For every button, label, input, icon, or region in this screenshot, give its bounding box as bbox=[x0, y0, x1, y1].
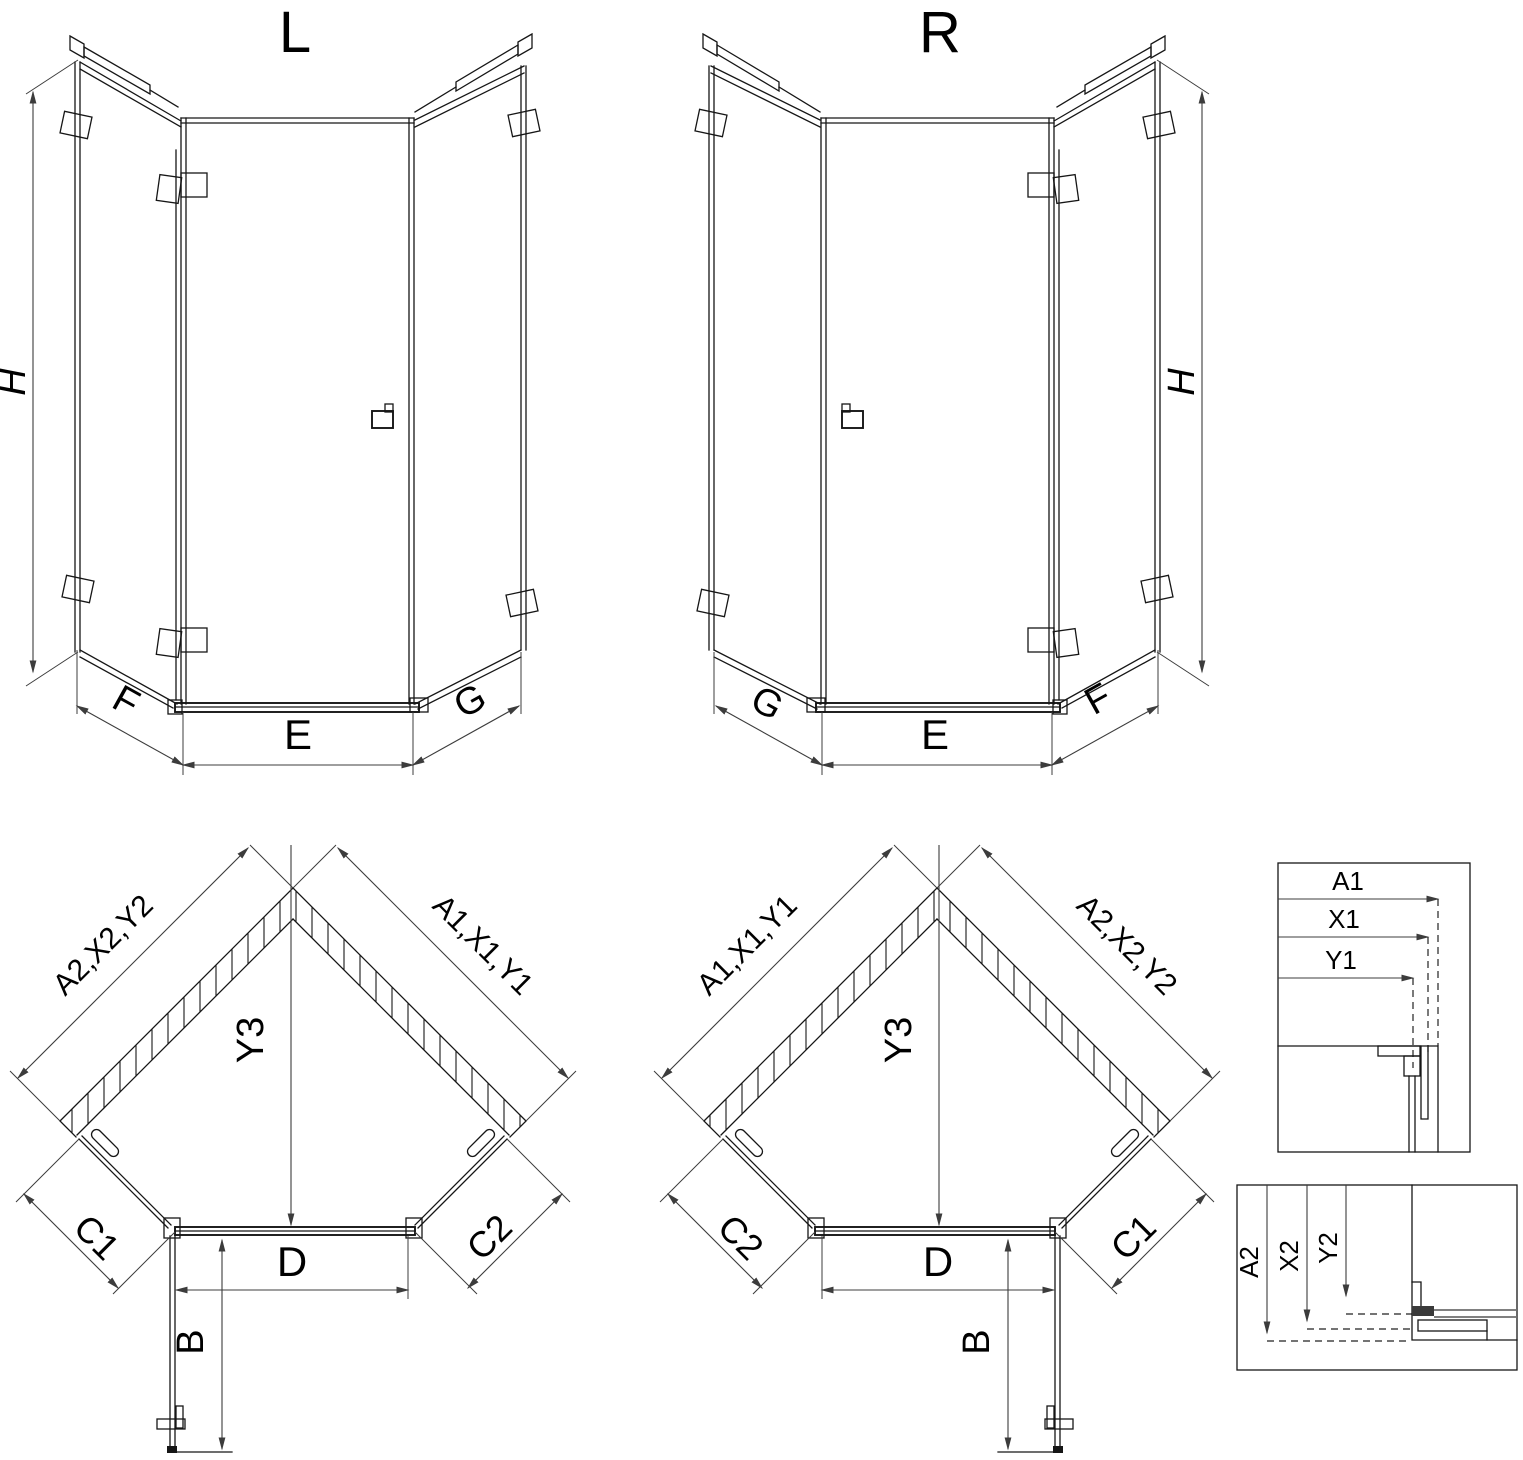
detail-top-y1-label: Y1 bbox=[1325, 945, 1357, 975]
iso-right-height-label: H bbox=[1161, 368, 1203, 396]
plan-left-wall-right-label: A1,X1,Y1 bbox=[426, 889, 539, 1002]
plan-left-y3-label: Y3 bbox=[230, 1017, 272, 1063]
iso-left-f-label: F bbox=[105, 678, 146, 726]
iso-right-f-label: F bbox=[1078, 676, 1119, 724]
plan-right-wall-right-label: A2,X2,Y2 bbox=[1070, 889, 1183, 1002]
plan-right-y3-label: Y3 bbox=[878, 1017, 920, 1063]
shower-enclosure-diagram: L H F E G R H G E F A2,X2,Y2 A1,X1,Y1 Y3… bbox=[0, 0, 1523, 1460]
plan-right-c2-label: C2 bbox=[710, 1206, 772, 1268]
plan-right-c1-label: C1 bbox=[1102, 1206, 1164, 1268]
iso-left-figure: L H F E G bbox=[0, 0, 540, 775]
plan-left-c1-label: C1 bbox=[66, 1206, 128, 1268]
detail-bottom-y2-label: Y2 bbox=[1313, 1232, 1343, 1264]
detail-top-x1-label: X1 bbox=[1328, 904, 1360, 934]
detail-box-a2x2y2: A2 X2 Y2 bbox=[1234, 1185, 1517, 1370]
plan-left-c2-label: C2 bbox=[458, 1206, 520, 1268]
iso-right-figure: R H G E F bbox=[695, 0, 1209, 775]
plan-right-wall-left-label: A1,X1,Y1 bbox=[691, 889, 804, 1002]
iso-right-e-label: E bbox=[921, 711, 949, 758]
plan-right-d-label: D bbox=[923, 1238, 953, 1285]
iso-left-height-label: H bbox=[0, 368, 34, 396]
iso-left-title: L bbox=[279, 0, 311, 65]
plan-left-d-label: D bbox=[277, 1238, 307, 1285]
plan-left-figure: A2,X2,Y2 A1,X1,Y1 Y3 C1 C2 D B bbox=[10, 845, 576, 1453]
iso-right-title: R bbox=[919, 0, 961, 65]
detail-top-a1-label: A1 bbox=[1332, 866, 1364, 896]
detail-box-a1x1y1: A1 X1 Y1 bbox=[1278, 863, 1470, 1152]
plan-left-wall-left-label: A2,X2,Y2 bbox=[47, 889, 160, 1002]
diagram-canvas: L H F E G R H G E F A2,X2,Y2 A1,X1,Y1 Y3… bbox=[0, 0, 1523, 1460]
plan-right-figure: A1,X1,Y1 A2,X2,Y2 Y3 C2 C1 D B bbox=[654, 845, 1220, 1453]
plan-left-b-label: B bbox=[170, 1329, 212, 1354]
detail-bottom-x2-label: X2 bbox=[1274, 1240, 1304, 1272]
iso-right-geometry bbox=[695, 34, 1209, 775]
detail-bottom-a2-label: A2 bbox=[1234, 1246, 1264, 1278]
iso-left-e-label: E bbox=[284, 711, 312, 758]
plan-right-b-label: B bbox=[956, 1329, 998, 1354]
